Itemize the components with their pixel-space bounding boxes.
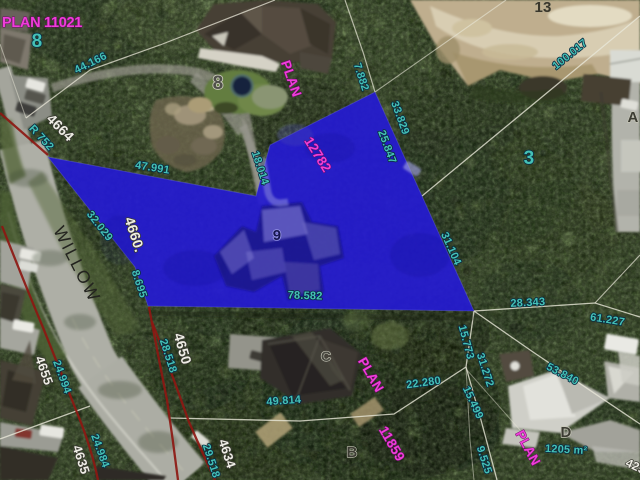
- svg-text:49.814: 49.814: [266, 394, 302, 408]
- svg-text:C: C: [321, 348, 331, 364]
- svg-text:9: 9: [273, 227, 282, 244]
- svg-text:1205 m²: 1205 m²: [545, 443, 588, 457]
- svg-text:78.582: 78.582: [287, 289, 322, 302]
- svg-text:13: 13: [534, 0, 551, 16]
- svg-text:8: 8: [213, 73, 224, 94]
- svg-text:3: 3: [524, 148, 535, 169]
- svg-text:A: A: [627, 109, 638, 126]
- svg-text:28.343: 28.343: [510, 296, 545, 310]
- svg-text:8: 8: [32, 31, 43, 52]
- svg-text:PLAN 11021: PLAN 11021: [2, 15, 82, 31]
- svg-text:B: B: [346, 444, 357, 461]
- svg-text:D: D: [560, 424, 571, 441]
